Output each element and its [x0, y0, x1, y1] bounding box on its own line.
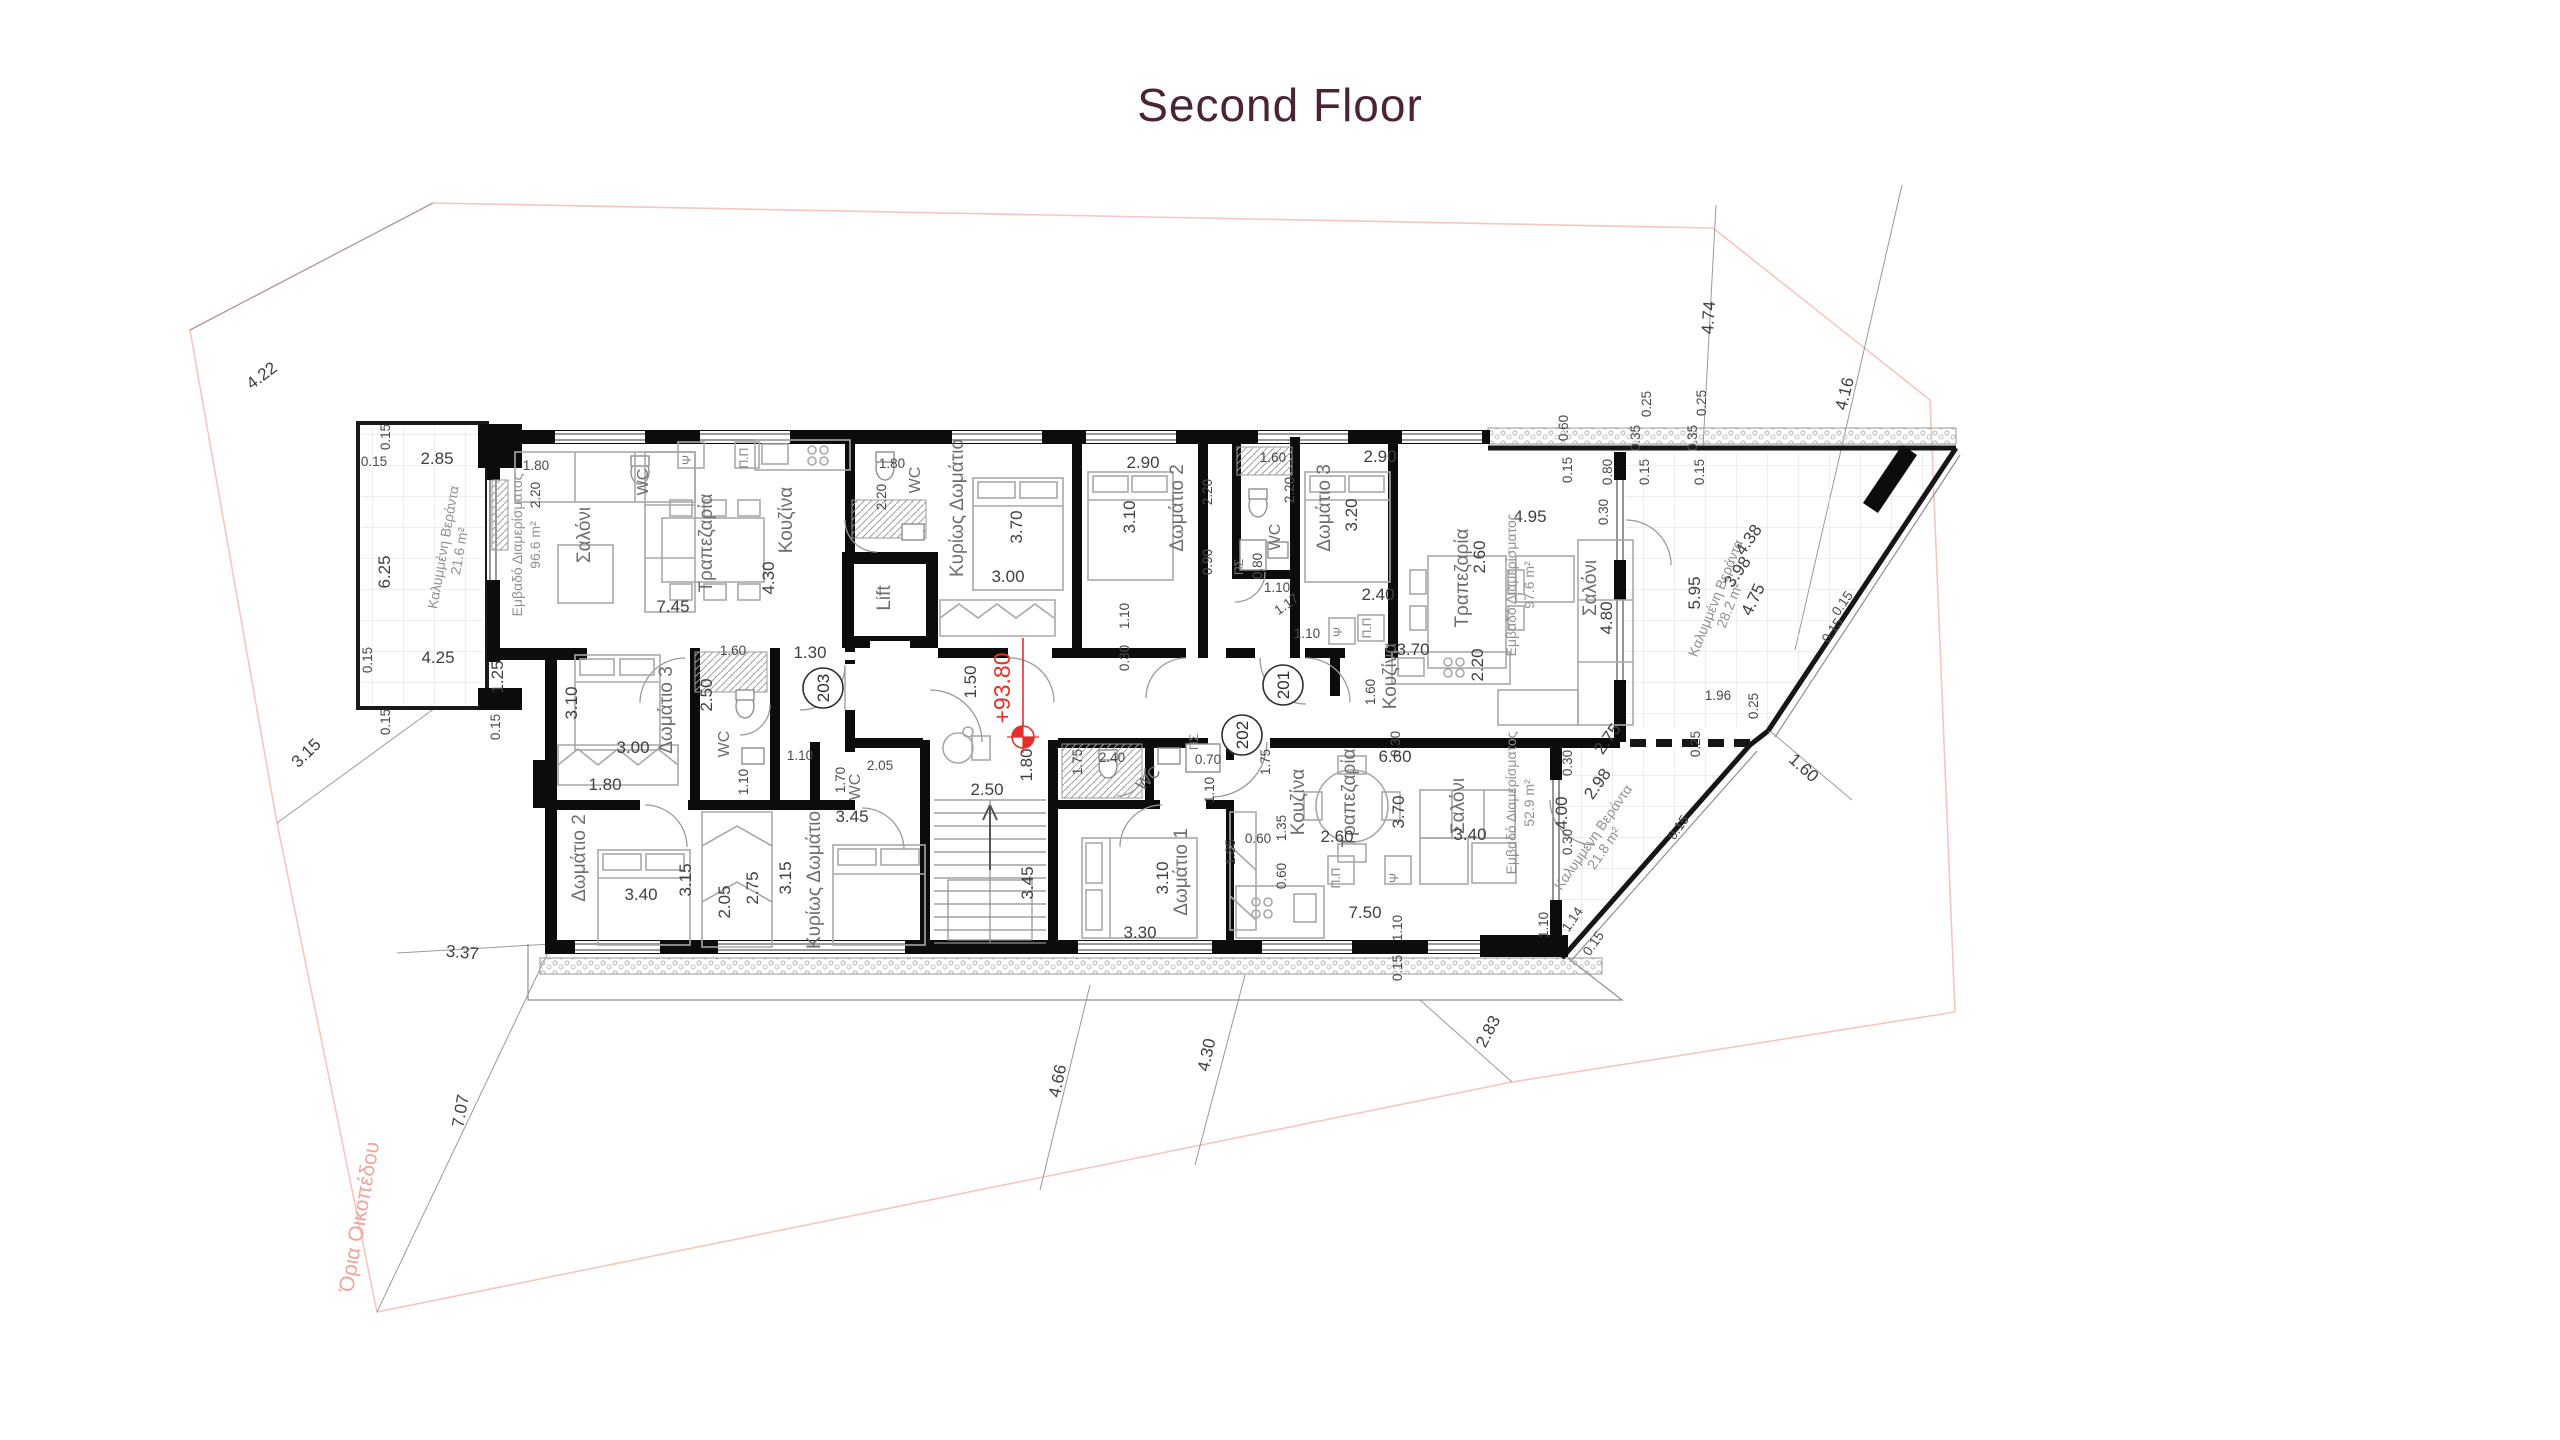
- dimension-label: 2.20: [1282, 477, 1297, 503]
- dimension-label: 2.40: [1099, 750, 1125, 765]
- dimension-label: 2.20: [528, 482, 543, 508]
- dimension-label: 2.20: [874, 484, 889, 510]
- dimension-label: 1.80: [879, 456, 905, 471]
- fixture-label: ΠΣ: [1187, 734, 1201, 750]
- dimension-label: 4.25: [421, 648, 454, 667]
- fixture-label: Ψ: [1387, 873, 1401, 883]
- floor-plan-drawing: 4.223.153.377.074.664.302.834.744.161.60…: [0, 0, 2560, 1440]
- dimension-label: 3.15: [776, 861, 795, 894]
- dimension-label: 1.60: [720, 643, 746, 658]
- dimension-label: 2.50: [970, 780, 1003, 799]
- dimension-label: 7.07: [448, 1093, 472, 1129]
- dimension-label: 3.45: [1018, 866, 1037, 899]
- dimension-label: 4.74: [1698, 300, 1719, 334]
- dimension-label: 1.10: [736, 769, 751, 795]
- dimension-label: 1.80: [523, 458, 549, 473]
- dimension-label: 3.37: [445, 942, 480, 964]
- dimension-label: 1.10: [1264, 580, 1290, 595]
- dimension-label: 0.25: [1746, 693, 1761, 719]
- dimension-label: 3.30: [1123, 923, 1156, 942]
- room-label: Δωμάτιο 3: [656, 666, 677, 754]
- dimension-label: 5.95: [1685, 576, 1704, 609]
- room-label: WC: [635, 469, 652, 496]
- dimension-label: 1.10: [787, 748, 813, 763]
- room-label: Δωμάτιο 2: [1167, 464, 1188, 552]
- dimension-label: 3.00: [991, 567, 1024, 586]
- dimension-label: 6.25: [375, 555, 394, 588]
- dimension-label: 2.85: [420, 449, 453, 468]
- dimension-label: 1.80: [588, 775, 621, 794]
- fixture-label: ΠΣ: [1232, 559, 1246, 575]
- level-value: +93.80: [989, 653, 1015, 724]
- lift-label: Lift: [874, 585, 895, 611]
- dimension-label: 3.15: [676, 863, 695, 896]
- dimension-label: 4.00: [1552, 796, 1571, 829]
- dimension-label: 2.40: [1361, 585, 1394, 604]
- dimension-label: 1.70: [833, 767, 848, 793]
- dimension-label: 1.25: [488, 660, 507, 693]
- unit-203-number: 203: [814, 674, 833, 702]
- dimension-label: 1.85: [1223, 839, 1238, 865]
- dimension-label: 2.90: [1126, 453, 1159, 472]
- dimension-label: 3.40: [1453, 825, 1486, 844]
- unit-201-number: 201: [1274, 671, 1293, 699]
- dimension-label: 0.35: [1685, 425, 1700, 451]
- wheelchair-icon: [943, 727, 990, 763]
- dimension-label: 0.25: [1639, 391, 1654, 417]
- dimension-label: 2.60: [1320, 827, 1353, 846]
- dimension-label: 2.60: [1470, 540, 1489, 573]
- dimension-label: 0.25: [1688, 731, 1703, 757]
- dimension-label: 0.15: [378, 709, 393, 735]
- room-label: Κουζίνα: [1288, 769, 1309, 835]
- dimension-label: 3.00: [616, 738, 649, 757]
- dimension-label: 2.90: [1363, 447, 1396, 466]
- dimension-label: 3.10: [562, 686, 581, 719]
- fixture-label: Π.Π: [1360, 618, 1374, 639]
- dimension-label: 4.16: [1831, 375, 1857, 412]
- room-label: WC: [1267, 524, 1284, 551]
- dimension-label: 1.75: [1070, 749, 1085, 775]
- dimension-label: 0.15: [1637, 459, 1652, 485]
- dimension-label: 0.60: [1274, 863, 1289, 889]
- dimension-label: 1.96: [1705, 688, 1731, 703]
- dimension-label: 0.15: [378, 424, 393, 450]
- dimension-label: 0.90: [1200, 549, 1215, 575]
- dimension-label: 4.80: [1597, 601, 1616, 634]
- dimension-label: 0.15: [1692, 459, 1707, 485]
- dimension-label: 1.10: [1117, 603, 1132, 629]
- unit-202-number: 202: [1233, 721, 1252, 749]
- dimension-label: 2.83: [1472, 1012, 1504, 1050]
- dimension-label: 3.10: [1153, 861, 1172, 894]
- dimension-label: 4.30: [759, 561, 778, 594]
- dimension-label: 1.80: [1017, 748, 1036, 781]
- room-label: Σαλόνι: [574, 507, 595, 563]
- room-label: Τραπεζαρία: [696, 493, 717, 592]
- dimension-label: 1.30: [793, 643, 826, 662]
- dimension-label: 0.25: [1694, 390, 1709, 416]
- dimension-label: 0.60: [1245, 831, 1271, 846]
- room-label: Κουζίνα: [1380, 643, 1401, 709]
- dimension-label: 1.60: [1785, 750, 1822, 786]
- dimension-label: 0.70: [1195, 752, 1221, 767]
- dimension-label: 2.05: [867, 758, 893, 773]
- dimension-label: 1.35: [1274, 815, 1289, 841]
- area-label-202: Εμβαδό Διαμερίσματος: [1503, 731, 1519, 874]
- dimension-label: 0.15: [1390, 955, 1405, 981]
- fixture-label: Ψ: [680, 455, 694, 465]
- room-label: Κυρίως Δωμάτιο: [804, 811, 825, 949]
- room-label: WC: [847, 774, 864, 801]
- room-label: Δωμάτιο 2: [569, 814, 590, 902]
- dimension-label: 3.70: [1389, 795, 1408, 828]
- dimension-label: 2.05: [715, 885, 734, 918]
- dimension-label: 2.20: [1468, 648, 1487, 681]
- dimension-label: 1.10: [1202, 777, 1217, 803]
- room-label: Δωμάτιο 3: [1314, 464, 1335, 552]
- dimension-label: 0.80: [1600, 459, 1615, 485]
- dimension-label: 0.15: [1560, 457, 1575, 483]
- dimension-label: 1.10: [1536, 912, 1551, 938]
- dimension-label: 7.45: [656, 597, 689, 616]
- area-label: 96.6 m²: [527, 521, 543, 569]
- dimension-label: 2.75: [743, 871, 762, 904]
- room-label: WC: [716, 731, 733, 758]
- dimension-label: 3.15: [288, 735, 325, 772]
- dimension-label: 3.40: [624, 885, 657, 904]
- dimension-label: 3.20: [1342, 498, 1361, 531]
- dimension-label: 1.75: [1258, 749, 1273, 775]
- dimension-label: 4.66: [1045, 1063, 1070, 1099]
- area-label: 52.9 m²: [1521, 779, 1537, 827]
- area-label: 97.6 m²: [1521, 561, 1537, 609]
- dimension-label: 1.10: [1390, 915, 1405, 941]
- dimension-label: 0.30: [1596, 499, 1611, 525]
- dimension-label: 2.20: [1200, 479, 1215, 505]
- dimension-label: 0.30: [1117, 645, 1132, 671]
- dimension-label: 3.45: [835, 807, 868, 826]
- dimension-label: 0.60: [1556, 415, 1571, 441]
- room-label: Κουζίνα: [776, 487, 797, 553]
- dimension-label: 1.60: [1260, 450, 1286, 465]
- dimension-label: 4.22: [243, 358, 281, 393]
- dimension-label: 0.15: [360, 647, 375, 673]
- dimension-label: 0.30: [1388, 731, 1403, 757]
- level-marker-icon: [1007, 721, 1039, 753]
- room-label: WC: [907, 467, 924, 494]
- area-label-203: Εμβαδό Διαμερίσματος: [509, 473, 525, 616]
- fixture-label: Π.Π: [737, 448, 751, 469]
- site-boundary-label: Όρια Οικοπέδου: [335, 1140, 384, 1295]
- dimension-label: 1.60: [1363, 679, 1378, 705]
- dimension-label: 3.70: [1396, 640, 1429, 659]
- dimension-label: 0.35: [1628, 425, 1643, 451]
- dimension-label: 0.30: [1560, 750, 1575, 776]
- dimension-label: 0.80: [1250, 553, 1265, 579]
- dimension-label: 0.15: [488, 714, 503, 740]
- fixture-label: Ψ: [1331, 627, 1345, 637]
- dimension-label: 4.30: [1194, 1037, 1219, 1073]
- dimension-label: 1.50: [961, 665, 980, 698]
- room-label: Κυρίως Δωμάτιο: [947, 439, 968, 577]
- area-label-201: Εμβαδό Διαμερίσματος: [1503, 513, 1519, 656]
- dimension-label: 7.50: [1348, 903, 1381, 922]
- dimension-label: 0.15: [361, 454, 387, 469]
- floor-plan-sheet: Second Floor: [0, 0, 2560, 1440]
- page-title: Second Floor: [0, 78, 2560, 132]
- dimension-label: 3.70: [1007, 510, 1026, 543]
- room-label: Δωμάτιο 1: [1171, 828, 1192, 916]
- dimension-label: 1.10: [1294, 626, 1320, 641]
- fixture-label: Π.Π: [1329, 868, 1343, 889]
- dimension-label: 2.50: [697, 678, 716, 711]
- dimension-label: 3.10: [1120, 500, 1139, 533]
